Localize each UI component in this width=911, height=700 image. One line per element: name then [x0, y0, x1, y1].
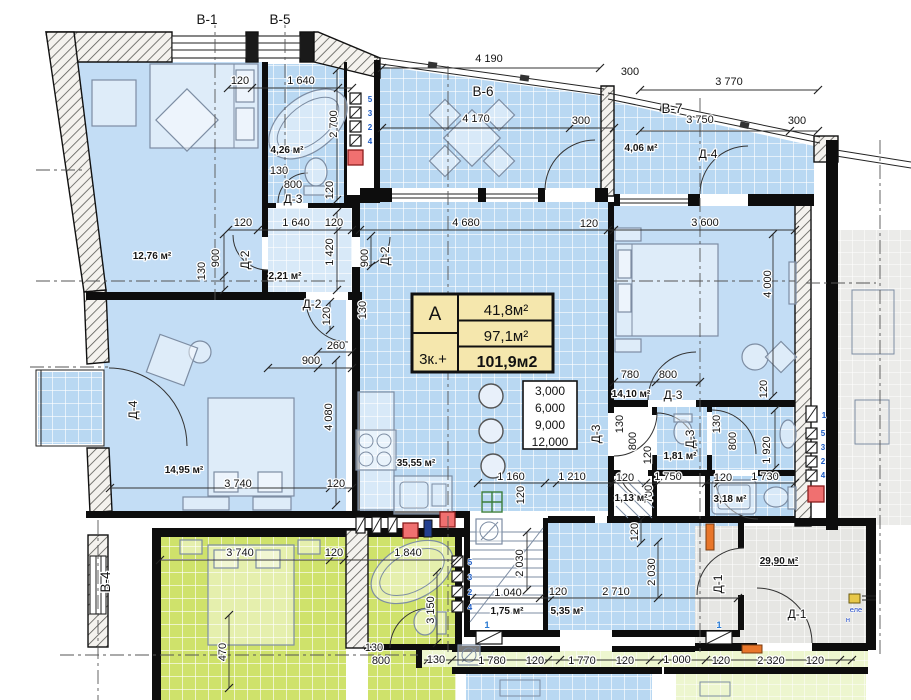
dim-label: 130 — [357, 301, 369, 319]
dim-label: 1 210 — [558, 471, 586, 483]
door-label-d2-b: Д-2 — [303, 297, 322, 311]
riser-num: 2 — [468, 588, 473, 597]
dim-label: 1 730 — [751, 471, 779, 483]
dim-label: 1 640 — [282, 217, 310, 229]
balcony-d4 — [38, 372, 102, 444]
dim-label: 120 — [758, 380, 770, 398]
dim-label: 130 — [270, 165, 288, 177]
area-wc-1: 1,81 м² — [664, 451, 698, 462]
sink — [780, 420, 796, 448]
area-hall-top: 2,21 м² — [269, 271, 303, 282]
dim-label: 3 600 — [691, 217, 719, 229]
area-bedroom-3: 14,10 м² — [612, 389, 651, 400]
mirror — [789, 262, 796, 304]
stove — [356, 430, 396, 470]
dim-label: 120 — [714, 472, 732, 484]
toilet — [764, 487, 788, 507]
axis-label-b6: В-6 — [472, 84, 493, 99]
dim-label: 4 680 — [452, 217, 480, 229]
dim-label: 900 — [359, 249, 371, 267]
table — [742, 344, 768, 370]
area-apartment: 97,1м² — [484, 328, 529, 345]
dim-label: 1 920 — [761, 436, 773, 464]
door-label-d1-b: Д-1 — [788, 607, 807, 621]
elevation-mark: 3,000 — [535, 384, 565, 398]
fire-hydrant-icon — [403, 523, 418, 538]
riser-group-icon — [348, 93, 363, 165]
riser-num: 2 — [368, 123, 373, 132]
dim-label: 800 — [627, 432, 639, 450]
shaft-area-right — [838, 230, 911, 525]
dim-label: 1 420 — [324, 238, 336, 266]
window-b1 — [172, 36, 246, 58]
note-elevator-2: н — [846, 615, 850, 624]
dim-label: 120 — [642, 446, 654, 464]
riser-num: 5 — [368, 95, 373, 104]
dim-label: 3 750 — [686, 114, 714, 126]
riser-num: 3 — [821, 443, 826, 452]
riser-num: 4 — [368, 137, 373, 146]
marker-1b: 1 — [716, 620, 722, 631]
door-label-d3-wc: Д-3 — [683, 429, 697, 448]
dim-label: 2 030 — [514, 549, 526, 577]
axis-label-b1: В-1 — [196, 12, 217, 27]
dim-label: 1 840 — [394, 547, 422, 559]
dim-label: 3 740 — [226, 547, 254, 559]
door-label-d4-left: Д-4 — [126, 400, 140, 419]
floor-plan-sheet: А 3к.+ 41,8м² 97,1м² 101,9м2 3,000 6,000… — [0, 0, 911, 700]
riser-num: 3 — [468, 573, 473, 582]
window-kitchen — [392, 194, 538, 198]
door-label-d3-kitchen: Д-3 — [589, 424, 603, 443]
note-elevator: еле — [850, 605, 862, 614]
door-label-d2-c: Д-2 — [378, 246, 392, 265]
dim-label: 800 — [659, 369, 677, 381]
dim-label: 2 320 — [757, 655, 785, 667]
dim-label: 800 — [727, 432, 739, 450]
dim-label: 800 — [284, 179, 302, 191]
dim-label: 120 — [327, 478, 345, 490]
dim-label: 4 190 — [475, 53, 503, 65]
dim-label: 4 000 — [762, 270, 774, 298]
elevation-mark: 12,000 — [532, 435, 569, 449]
elevation-mark: 9,000 — [535, 418, 565, 432]
hydrant-strip — [742, 645, 762, 653]
window-b5 — [258, 36, 300, 58]
dim-label: 130 — [427, 654, 445, 666]
riser-num: 3 — [368, 109, 373, 118]
area-stair: 1,75 м² — [491, 606, 525, 617]
area-bath-right: 3,18 м² — [714, 494, 748, 505]
dim-label: 1 780 — [478, 655, 506, 667]
riser-num: 2 — [821, 457, 826, 466]
dim-label: 120 — [231, 75, 249, 87]
area-living: 41,8м² — [484, 302, 529, 319]
fire-hydrant-icon — [808, 486, 824, 502]
axis-label-b4: В-4 — [98, 571, 113, 593]
room-below-blue — [466, 674, 652, 700]
door-label-d2-a: Д-2 — [238, 250, 252, 269]
door-label-d1-a: Д-1 — [711, 574, 725, 593]
dim-label: 4 170 — [462, 113, 490, 125]
riser-num: 4 — [468, 603, 473, 612]
dim-label: 2 710 — [602, 586, 630, 598]
dim-label: 900 — [302, 355, 320, 367]
door-label-d3-bedroom: Д-3 — [664, 388, 683, 402]
dim-label: 780 — [621, 369, 639, 381]
area-balcony-b7: 4,06 м² — [625, 143, 659, 154]
dim-label: 1 640 — [287, 75, 315, 87]
column — [479, 384, 503, 408]
dim-label: 120 — [712, 655, 730, 667]
fire-hydrant-icon — [440, 512, 455, 527]
dim-label: 4 080 — [323, 403, 335, 431]
axis-label-b5: В-5 — [269, 12, 290, 27]
title-block: А 3к.+ 41,8м² 97,1м² 101,9м2 — [412, 294, 553, 372]
dim-label: 120 — [580, 218, 598, 230]
area-bedroom-1: 12,76 м² — [133, 251, 172, 262]
dim-label: 1 770 — [568, 655, 596, 667]
apartment-rooms: 3к.+ — [419, 351, 447, 368]
dim-label: 1 040 — [494, 587, 522, 599]
dim-label: 130 — [711, 415, 723, 433]
dim-label: 1 160 — [497, 471, 525, 483]
dim-label: 120 — [629, 523, 641, 541]
dim-label: 120 — [616, 472, 634, 484]
area-corridor: 29,90 м² — [760, 556, 799, 567]
dim-label: 120 — [526, 655, 544, 667]
riser-num: 1 — [822, 411, 827, 420]
dim-label: 300 — [572, 115, 590, 127]
dim-label: 130 — [614, 415, 626, 433]
riser-num: 5 — [468, 558, 473, 567]
dim-label: 900 — [210, 249, 222, 267]
area-wc-2: 1,13 м² — [615, 493, 649, 504]
door-label-d4-balcony: Д-4 — [699, 147, 718, 161]
dim-label: 120 — [321, 307, 333, 325]
dim-label: 2 030 — [646, 558, 658, 586]
dim-label: 120 — [549, 586, 567, 598]
dim-label: 3 150 — [425, 596, 437, 624]
axis-label-b7: В-7 — [661, 101, 682, 116]
hydrant-strip — [706, 524, 714, 550]
area-bath-top: 4,26 м² — [271, 145, 305, 156]
area-kitchen-living: 35,55 м² — [397, 458, 436, 469]
dim-label: 120 — [324, 181, 336, 199]
area-total: 101,9м2 — [477, 354, 538, 371]
dim-label: 800 — [372, 655, 390, 667]
dim-label: 120 — [325, 547, 343, 559]
riser-num: 4 — [821, 471, 826, 480]
marker-1a: 1 — [484, 620, 490, 631]
dim-label: 1 750 — [654, 471, 682, 483]
dim-label: 470 — [217, 643, 229, 661]
floor-plan: А 3к.+ 41,8м² 97,1м² 101,9м2 3,000 6,000… — [0, 0, 911, 700]
dim-label: 120 — [806, 655, 824, 667]
dim-label: 300 — [788, 115, 806, 127]
area-bedroom-2: 14,95 м² — [165, 465, 204, 476]
dim-label: 130 — [365, 642, 383, 654]
dim-label: 130 — [196, 262, 208, 280]
area-hall-bottom: 5,35 м² — [551, 606, 585, 617]
riser-num: 5 — [821, 429, 826, 438]
dim-label: 120 — [616, 655, 634, 667]
dim-label: 3 740 — [224, 478, 252, 490]
dim-label: 300 — [621, 66, 639, 78]
dim-label: 3 770 — [715, 76, 743, 88]
elevation-mark: 6,000 — [535, 401, 565, 415]
window-bedroom-3 — [620, 199, 688, 203]
apartment-type: А — [429, 304, 442, 325]
desk — [92, 80, 136, 126]
dim-label: 120 — [515, 486, 527, 504]
fire-hydrant-icon — [348, 150, 363, 165]
dim-label: 260 — [327, 340, 345, 352]
washing-machine — [476, 519, 502, 544]
dim-label: 2 700 — [328, 110, 340, 138]
elevation-box: 3,000 6,000 9,000 12,000 — [523, 381, 577, 449]
door-label-d3-top: Д-3 — [284, 192, 303, 206]
dim-label: 120 — [234, 217, 252, 229]
hatched-partition — [346, 530, 368, 648]
dim-label: 120 — [325, 217, 343, 229]
washing-machine — [458, 645, 480, 665]
dim-label: 1 000 — [663, 654, 691, 666]
column — [479, 419, 503, 443]
